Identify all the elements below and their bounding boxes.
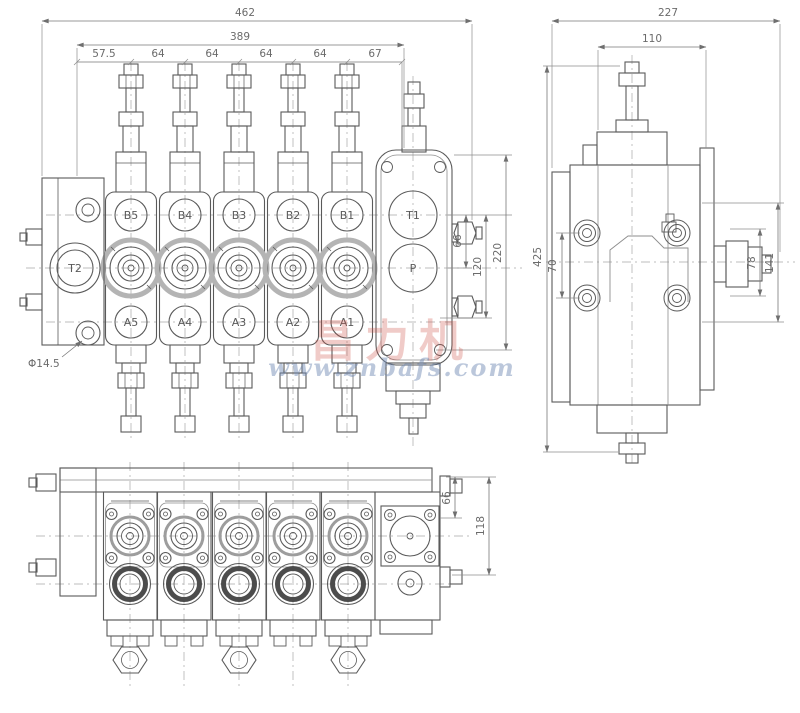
dim-side-inner-width: 110 bbox=[598, 33, 706, 148]
dim-64-2: 64 bbox=[205, 48, 219, 60]
dim-227: 227 bbox=[658, 7, 678, 19]
technical-drawing: B5 B4 B3 B2 B1 A5 A4 A3 A2 A1 T2 T1 P 46… bbox=[0, 0, 800, 713]
dim-bottom-right: 66 118 bbox=[440, 477, 496, 575]
dim-side-height: 425 bbox=[532, 66, 620, 452]
dim-64-1: 64 bbox=[151, 48, 165, 60]
port-label-t1: T1 bbox=[405, 209, 420, 222]
bottom-view: 66 118 bbox=[29, 462, 496, 688]
port-label-b1: B1 bbox=[340, 209, 355, 222]
drawing-canvas: B5 B4 B3 B2 B1 A5 A4 A3 A2 A1 T2 T1 P 46… bbox=[0, 0, 800, 713]
side-view: 227 110 425 70 bbox=[532, 7, 795, 465]
valve-section bbox=[157, 62, 213, 442]
dim-220: 220 bbox=[492, 243, 504, 263]
port-label-a5: A5 bbox=[124, 316, 139, 329]
port-label-t2: T2 bbox=[67, 262, 82, 275]
dim-hole-14-5: Φ14.5 bbox=[28, 358, 60, 370]
port-label-b2: B2 bbox=[286, 209, 301, 222]
valve-section-bottom bbox=[267, 462, 321, 688]
dim-425: 425 bbox=[532, 247, 544, 267]
watermark: 昌力机 www.znbafs.com bbox=[268, 316, 516, 382]
left-end-cover bbox=[20, 178, 104, 345]
port-label-b3: B3 bbox=[232, 209, 247, 222]
dim-78: 78 bbox=[746, 256, 758, 269]
dim-64-4: 64 bbox=[313, 48, 327, 60]
dim-462: 462 bbox=[235, 7, 255, 19]
dim-57-5: 57.5 bbox=[92, 48, 115, 60]
valve-section bbox=[211, 62, 267, 442]
dim-66: 66 bbox=[452, 234, 464, 248]
dim-64-3: 64 bbox=[259, 48, 273, 60]
dim-389: 389 bbox=[230, 31, 250, 43]
dim-110: 110 bbox=[642, 33, 662, 45]
dim-120: 120 bbox=[472, 257, 484, 277]
port-label-p: P bbox=[410, 262, 417, 275]
dim-141: 141 bbox=[764, 253, 776, 273]
watermark-url-text: www.znbafs.com bbox=[268, 353, 516, 382]
valve-section-bottom bbox=[213, 462, 267, 688]
valve-section bbox=[319, 62, 375, 442]
valve-section-bottom bbox=[322, 462, 376, 688]
valve-section-bottom bbox=[158, 462, 212, 688]
port-label-a3: A3 bbox=[232, 316, 247, 329]
bottom-frame bbox=[29, 468, 432, 596]
port-label-a4: A4 bbox=[178, 316, 193, 329]
port-label-b5: B5 bbox=[124, 209, 139, 222]
dim-118: 118 bbox=[475, 516, 487, 536]
side-body bbox=[552, 62, 771, 463]
dim-66-bottom: 66 bbox=[441, 491, 453, 505]
dim-70: 70 bbox=[547, 259, 559, 272]
dim-67: 67 bbox=[368, 48, 381, 60]
valve-section bbox=[265, 62, 321, 442]
valve-section-bottom bbox=[104, 462, 158, 688]
port-label-b4: B4 bbox=[178, 209, 193, 222]
port-label-a2: A2 bbox=[286, 316, 301, 329]
valve-section bbox=[103, 62, 159, 442]
